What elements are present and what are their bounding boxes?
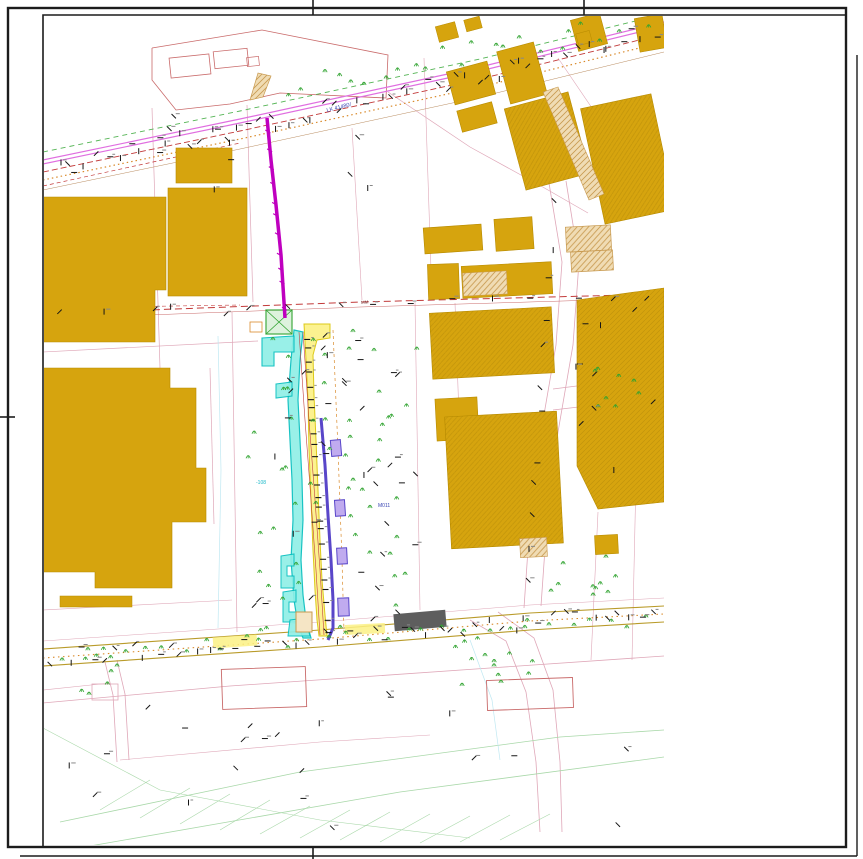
drawing-sheet: LK 41480/M011-108MM: [0, 0, 863, 859]
map-label-1: M011: [378, 503, 390, 509]
map-label-3: MM: [361, 300, 369, 305]
site-plan-canvas: LK 41480/M011-108MM: [0, 0, 863, 859]
building-footprints: [43, 13, 675, 711]
map-label-2: -108: [256, 480, 266, 486]
map-content: LK 41480/M011-108MM: [43, 12, 675, 846]
